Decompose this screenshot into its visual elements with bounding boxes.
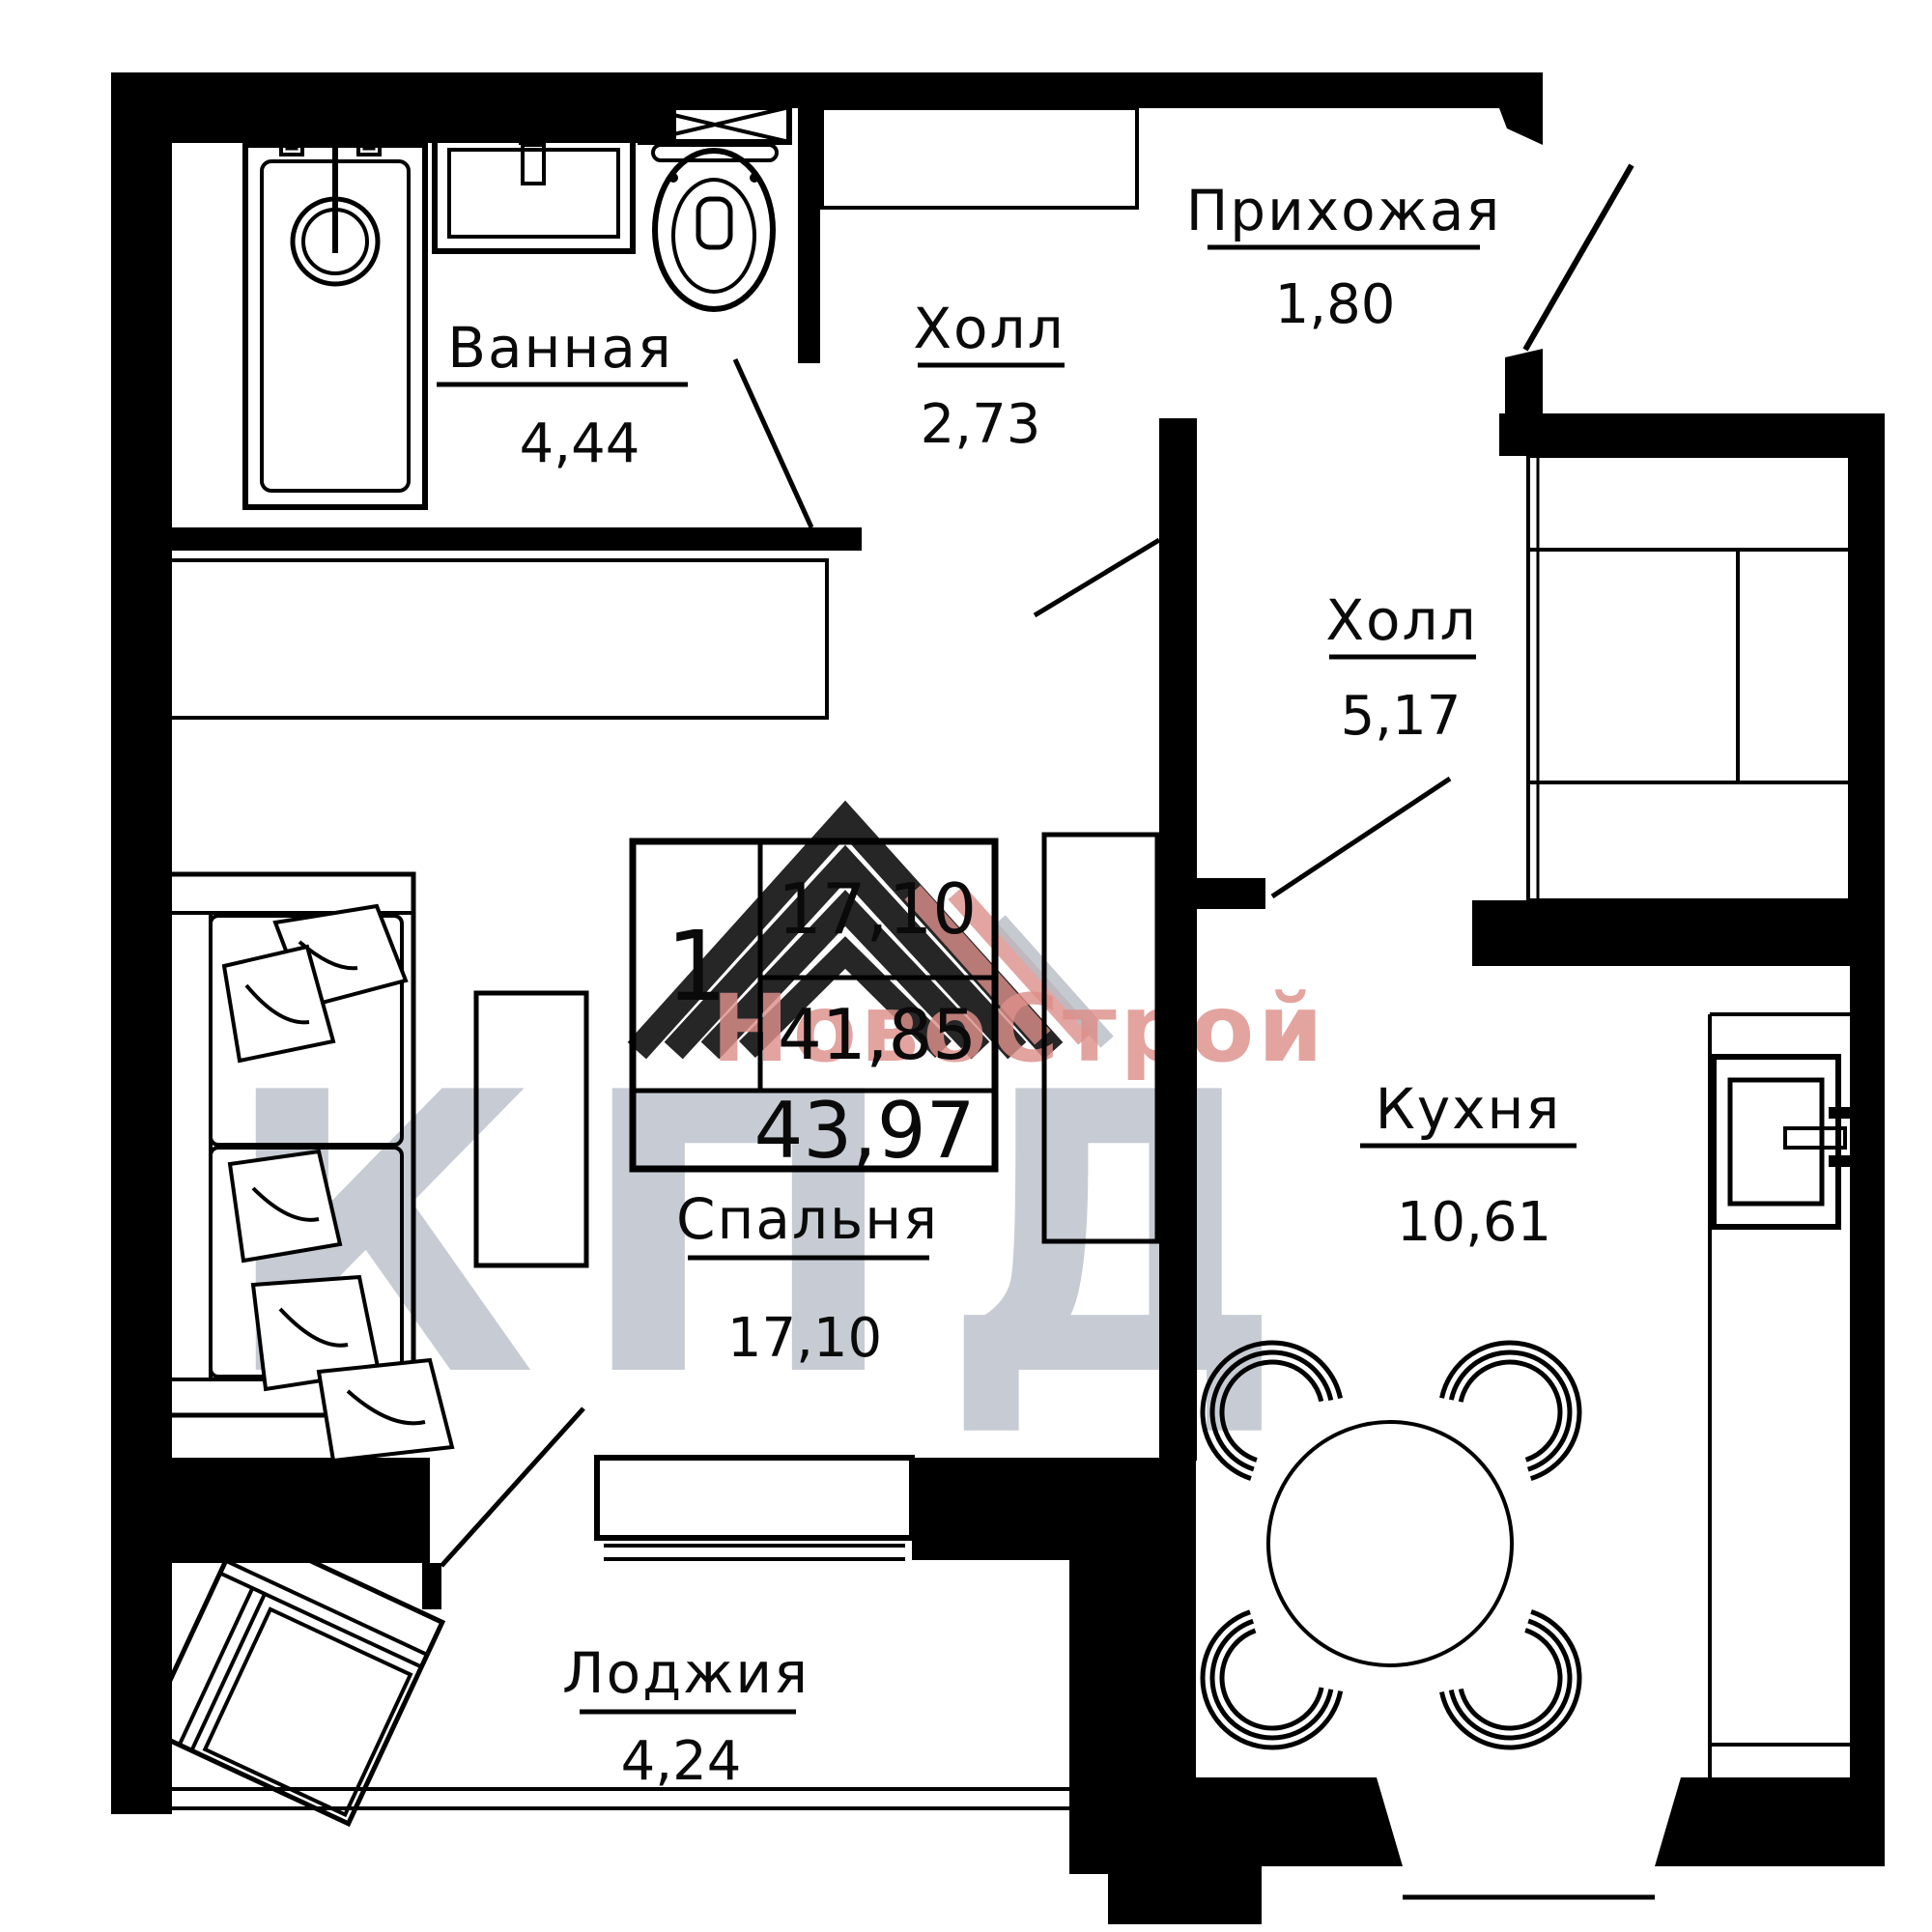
bedroom-door-leaf bbox=[1035, 540, 1159, 615]
toilet-icon bbox=[640, 107, 789, 309]
table-total-area: 43,97 bbox=[753, 1086, 975, 1176]
hall-big-name: Холл bbox=[1325, 587, 1477, 653]
hall5-wardrobe bbox=[1528, 456, 1850, 900]
wall-entry-jamb bbox=[1505, 349, 1543, 413]
loggia-area: 4,24 bbox=[621, 1730, 742, 1793]
bathroom-fixtures bbox=[245, 97, 789, 507]
wall-top-thin bbox=[676, 72, 1543, 108]
label-hall-small: Холл 2,73 bbox=[913, 296, 1065, 456]
dining-table bbox=[1268, 1422, 1512, 1665]
bedroom-wardrobe bbox=[164, 560, 827, 718]
wall-mid-vertical bbox=[1159, 418, 1197, 1461]
kitchen-area: 10,61 bbox=[1397, 1191, 1551, 1254]
bathroom-door-leaf bbox=[735, 359, 811, 527]
kitchen-window-sill bbox=[1403, 1866, 1655, 1895]
table-area-no-loggia: 41,85 bbox=[778, 994, 977, 1075]
kitchen-window-opening bbox=[1377, 1777, 1681, 1866]
kitchen-door-leaf bbox=[1272, 779, 1450, 896]
label-loggia: Лоджия 4,24 bbox=[562, 1640, 810, 1793]
hall-small-name: Холл bbox=[913, 296, 1065, 361]
bathroom-name: Ванная bbox=[447, 315, 673, 381]
entry-area: 1,80 bbox=[1275, 273, 1396, 336]
wall-bath-stub bbox=[798, 108, 820, 363]
wall-bottom-step bbox=[1108, 1866, 1262, 1924]
bathroom-area: 4,44 bbox=[520, 412, 640, 475]
wall-entry-notch bbox=[1499, 108, 1543, 145]
floor-plan-page: НовоСтрой КПД bbox=[0, 0, 1932, 1932]
loggia-name: Лоджия bbox=[562, 1640, 810, 1706]
wall-balcony-jamb bbox=[422, 1563, 441, 1609]
dining-chair bbox=[1422, 1590, 1597, 1765]
bedroom-name: Спальня bbox=[676, 1186, 939, 1252]
table-rooms-count: 1 bbox=[666, 910, 727, 1023]
bedroom-window bbox=[597, 1458, 912, 1538]
hall-small-area: 2,73 bbox=[921, 393, 1041, 456]
label-bathroom: Ванная 4,44 bbox=[437, 315, 688, 475]
dining-chair bbox=[1428, 1330, 1593, 1495]
label-kitchen: Кухня 10,61 bbox=[1360, 1076, 1577, 1254]
label-hall-big: Холл 5,17 bbox=[1325, 587, 1477, 748]
dining-chair bbox=[1191, 1597, 1354, 1760]
kitchen-name: Кухня bbox=[1376, 1076, 1562, 1142]
wall-kitchen-door-stub bbox=[1159, 878, 1265, 909]
wall-bath-bottom bbox=[111, 527, 862, 551]
wall-kitchen-top bbox=[1472, 900, 1850, 966]
hall-big-area: 5,17 bbox=[1341, 685, 1462, 748]
bedroom-area: 17,10 bbox=[727, 1307, 882, 1370]
table-living-area: 17,10 bbox=[778, 868, 977, 950]
kitchen-side-window bbox=[1714, 1057, 1850, 1227]
entry-door-leaf bbox=[1525, 165, 1632, 350]
wall-top-right bbox=[1499, 413, 1885, 456]
wall-right bbox=[1850, 456, 1885, 1866]
wall-left bbox=[111, 72, 172, 1814]
label-entry: Прихожая 1,80 bbox=[1186, 178, 1502, 336]
hall-closet bbox=[822, 108, 1137, 208]
entry-name: Прихожая bbox=[1186, 178, 1502, 243]
bathtub-icon bbox=[245, 133, 425, 507]
wall-balcony-left bbox=[172, 1458, 430, 1563]
floor-plan-svg: НовоСтрой КПД bbox=[0, 0, 1932, 1932]
wall-corner-horizontal bbox=[912, 1458, 1196, 1560]
loggia-armchair bbox=[147, 1528, 442, 1824]
